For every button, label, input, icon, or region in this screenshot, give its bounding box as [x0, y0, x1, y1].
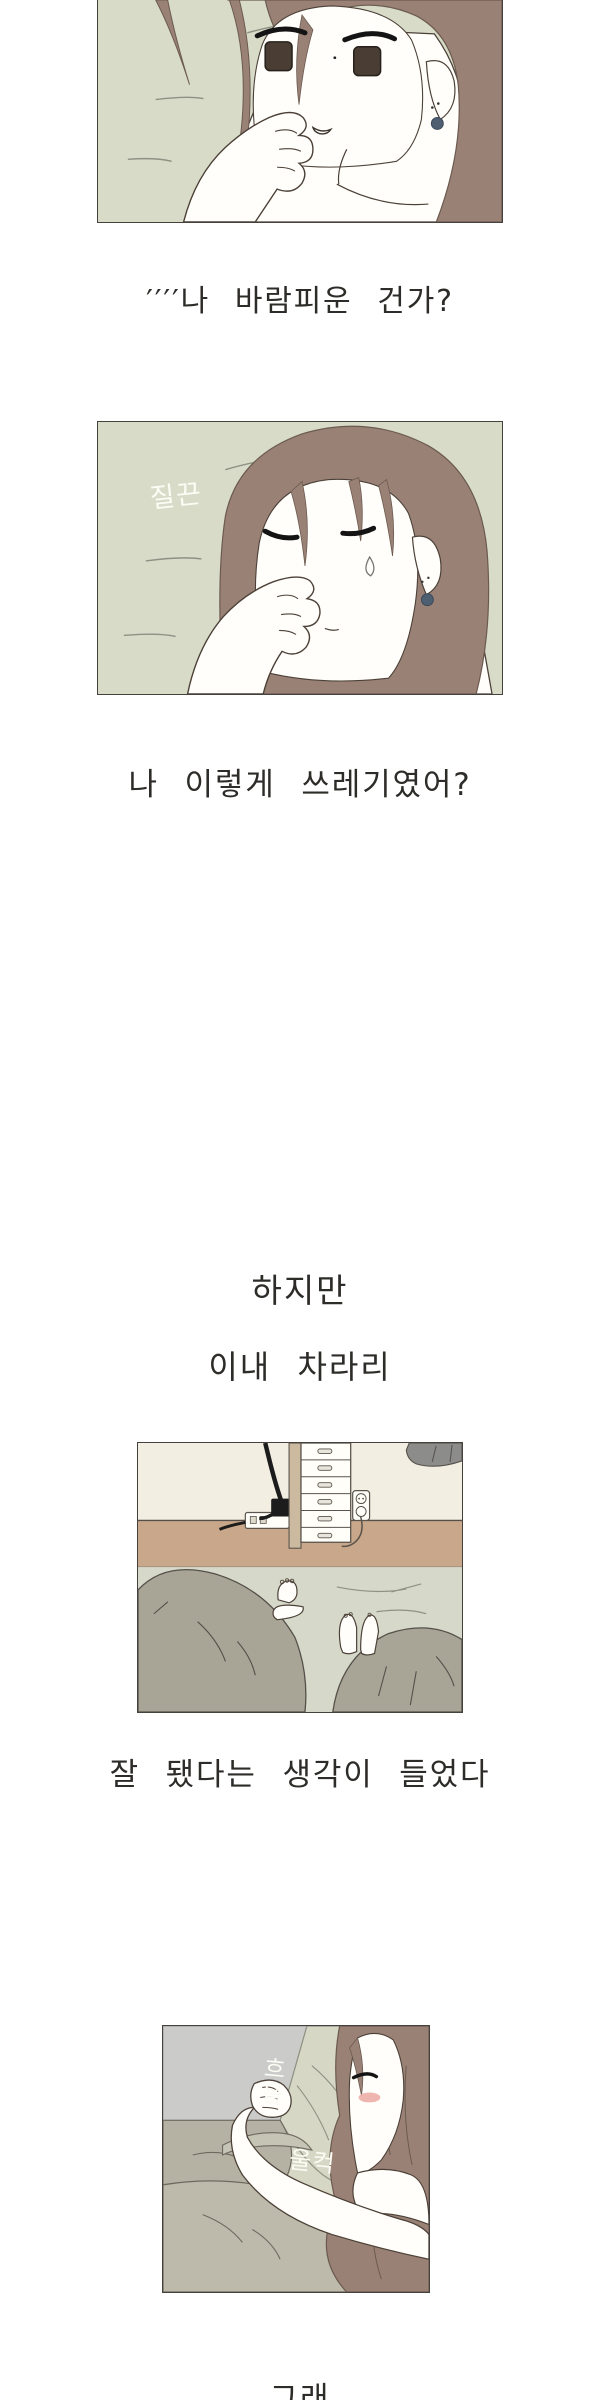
narration-line-4: 이내 차라리: [0, 1347, 600, 1387]
earring: [421, 594, 433, 606]
narration-line-2: 나 이렇게 쓰레기였어?: [0, 766, 600, 805]
panel-3-illustration: [138, 1443, 462, 1712]
panel-2-illustration: [98, 422, 502, 694]
comic-panel-2: 질끈: [97, 421, 503, 695]
earring: [431, 117, 443, 129]
dresser: [289, 1443, 351, 1548]
narration-line-3: 하지만: [0, 1270, 600, 1311]
comic-panel-3: [137, 1442, 463, 1713]
comic-panel-1: [97, 0, 503, 223]
narration-line-6-cutoff: 그래: [0, 2380, 600, 2400]
webtoon-page: ′′′′나 바람피운 건가?: [0, 0, 600, 2400]
sfx-squeeze-text: 질끈: [149, 479, 204, 513]
sfx-sigh-text: 흐음: [261, 2057, 291, 2109]
blush: [359, 2093, 381, 2103]
panel-1-illustration: [98, 0, 502, 222]
comic-panel-4: 흐음 울컥: [162, 2025, 430, 2293]
narration-line-5: 잘 됐다는 생각이 들었다: [0, 1756, 600, 1795]
narration-line-1: ′′′′나 바람피운 건가?: [0, 283, 600, 321]
sfx-surge-text: 울컥: [288, 2148, 337, 2179]
hanging-cloth: [406, 1443, 462, 1466]
